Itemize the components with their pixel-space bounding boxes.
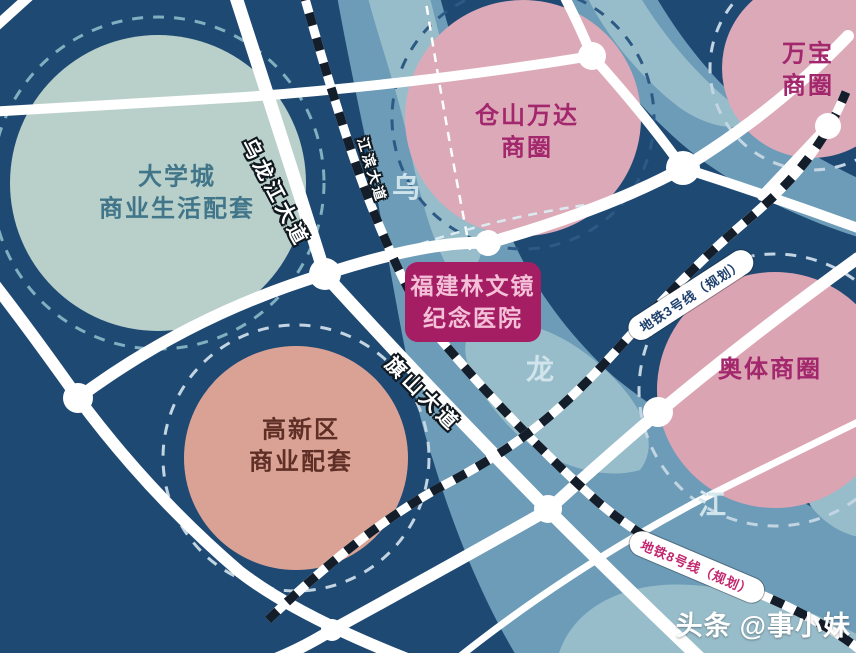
watermark: 头条@事小妹: [676, 604, 851, 643]
zone-circle-gaoxin: [184, 346, 408, 570]
hospital-name-line: 福建林文镜: [411, 270, 536, 302]
road-node: [63, 383, 93, 413]
hospital-name-line: 纪念医院: [423, 302, 523, 334]
river-char-jiang: 江: [698, 483, 726, 523]
road-node: [578, 42, 606, 70]
road-corner-topleft: [0, 0, 34, 30]
road-node: [309, 258, 341, 290]
river-char-wu: 乌: [392, 166, 420, 206]
hospital-callout: 福建林文镜 纪念医院: [405, 262, 541, 342]
river-char-long: 龙: [526, 348, 554, 388]
road-node: [643, 397, 673, 427]
road-node: [534, 495, 562, 523]
watermark-handle: @事小妹: [740, 611, 851, 641]
watermark-brand: 头条: [676, 611, 732, 641]
road-node: [321, 619, 343, 641]
road-node: [815, 113, 841, 139]
road-node: [666, 151, 700, 185]
promo-map: 乌 龙 江 大学城 商业生活配套 仓山万达 商圈 万宝 商圈 奥体商圈 高新区 …: [0, 0, 856, 653]
road-node: [475, 230, 501, 256]
